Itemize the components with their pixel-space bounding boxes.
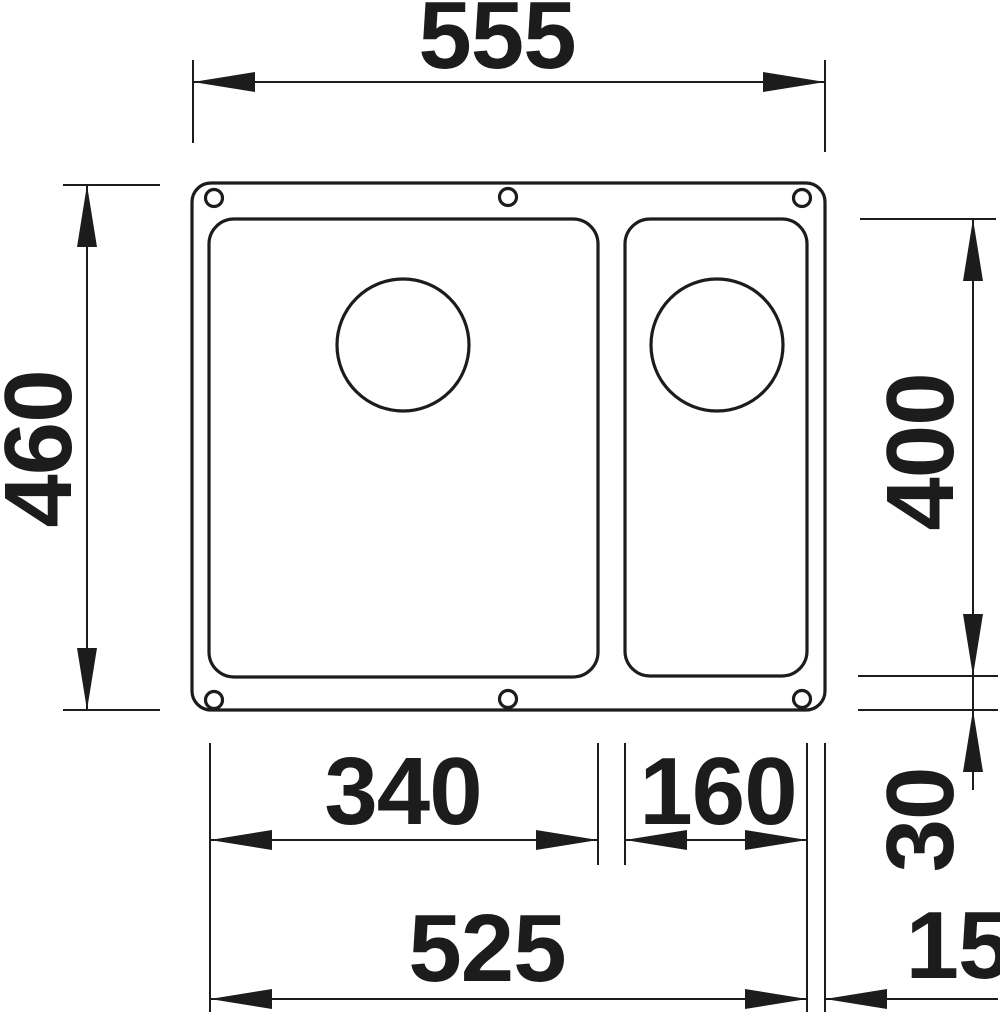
main-bowl-drain-hole [337, 279, 469, 411]
dim-label-small-bowl-width: 160 [639, 744, 796, 840]
arrowhead-right [536, 830, 598, 850]
sink-outline [192, 183, 825, 710]
mounting-holes [206, 189, 811, 709]
mounting-hole-top-right [794, 190, 811, 207]
dim-label-bowl-depth: 400 [873, 373, 969, 530]
arrowhead-right [745, 989, 807, 1009]
mounting-hole-top-center [500, 189, 517, 206]
arrowhead-right [763, 72, 825, 92]
mounting-hole-bottom-center [500, 691, 517, 708]
main-bowl-outline [209, 219, 598, 677]
arrowhead-left [210, 830, 272, 850]
dim-label-front-gap: 30 [873, 768, 969, 873]
arrowhead-down [963, 614, 983, 676]
sink-body [192, 183, 825, 710]
mounting-hole-bottom-left [206, 692, 223, 709]
dim-label-main-bowl-width: 340 [324, 744, 481, 840]
mounting-hole-bottom-right [794, 691, 811, 708]
small-bowl-outline [625, 219, 807, 676]
arrowhead-down [77, 648, 97, 710]
sink-technical-drawing: 555 460 400 30 340 160 525 15 [0, 0, 1000, 1023]
arrowhead-left [210, 989, 272, 1009]
arrowhead-up-outside [963, 710, 983, 772]
arrowhead-left-outside [825, 989, 887, 1009]
dim-label-overall-depth: 460 [0, 370, 87, 527]
arrowhead-up [77, 185, 97, 247]
mounting-hole-top-left [206, 190, 223, 207]
arrowhead-left [193, 72, 255, 92]
drawing-linework [0, 0, 1000, 1023]
dim-label-edge-gap: 15 [906, 898, 1000, 994]
small-bowl-drain-hole [651, 279, 783, 411]
dim-label-cutout-width: 525 [408, 901, 565, 997]
arrowhead-up [963, 219, 983, 281]
dim-label-overall-width: 555 [418, 0, 575, 84]
